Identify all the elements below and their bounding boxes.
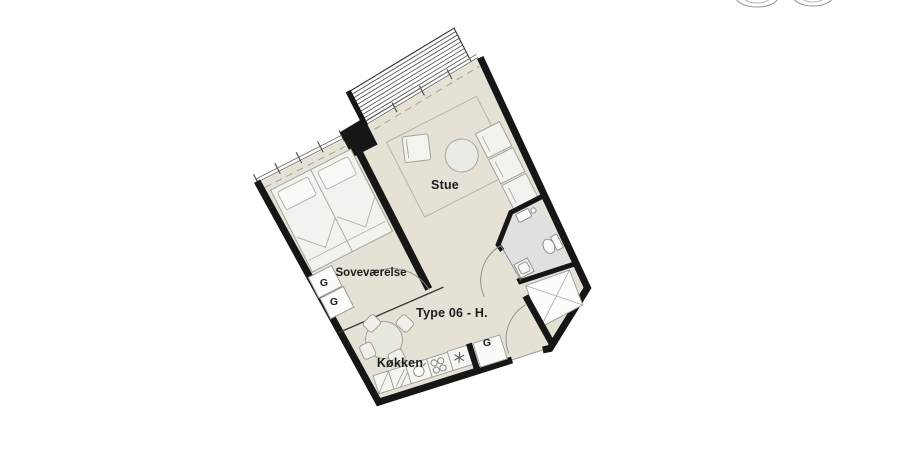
living-room-label: Stue xyxy=(431,178,459,192)
bedroom-label: Soveværelse xyxy=(336,267,407,279)
wardrobe-label: G xyxy=(320,277,328,289)
wardrobe-label: G xyxy=(483,337,491,349)
floor-plan-canvas: Stue Soveværelse Køkken Type 06 - H. G G… xyxy=(0,0,905,460)
armchair-icon xyxy=(402,134,431,163)
kitchen-label: Køkken xyxy=(377,356,423,370)
floor-plan-page: Stue Soveværelse Køkken Type 06 - H. G G… xyxy=(0,0,905,460)
wardrobe-label: G xyxy=(330,296,338,308)
unit-type-label: Type 06 - H. xyxy=(416,306,488,320)
